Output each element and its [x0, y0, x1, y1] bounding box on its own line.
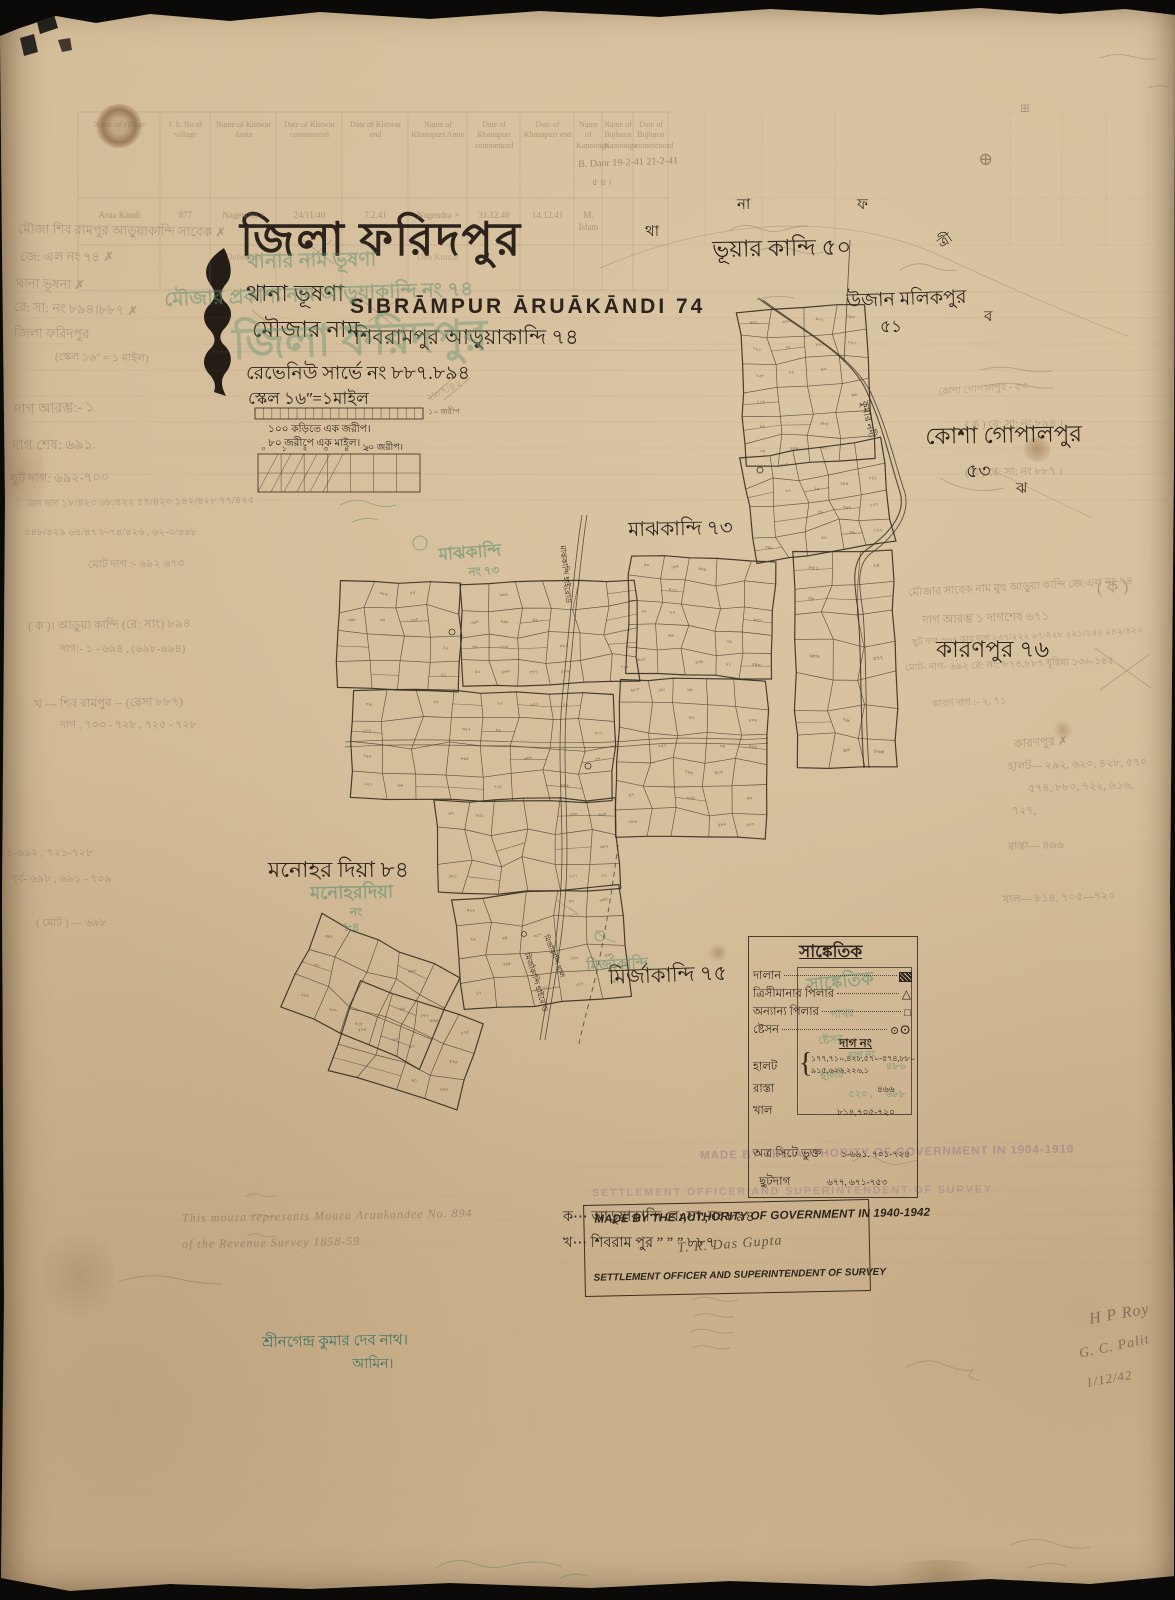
- parcel-number-texture: ৬৫: [400, 1006, 406, 1011]
- parcel-number-texture: ৩৫৮: [764, 544, 773, 551]
- legend-halot-label: হালট: [753, 1061, 777, 1073]
- parcel-number-texture: ৩২৭: [462, 726, 471, 732]
- parcel-number-texture: ৬১৫: [638, 657, 647, 662]
- parcel-grid-lines: [736, 305, 875, 467]
- parcel-number-texture: ৬৬: [668, 632, 674, 638]
- parcel-number-texture: ৪১: [441, 672, 447, 677]
- parcel-subdivision-lines: [794, 569, 893, 723]
- handwritten-scribble: [760, 247, 824, 254]
- parcel-number-texture: ১৮৫: [670, 563, 679, 569]
- parcel-number-texture: ৫১: [475, 669, 481, 674]
- paper-sheet: ৬৩১৪২৩৯০১৩৯৩০২১৭৭৮৯১০২০৭২৮০২৯৩১১৫৬৬৯২৪৮৫…: [0, 0, 1175, 1600]
- station-circle: [757, 467, 763, 473]
- parcel-number-texture: ৭২৫: [493, 784, 502, 789]
- boundary-pencil-line: [988, 468, 1092, 518]
- parcel-number-texture: ৩৭৭: [529, 669, 538, 674]
- parcel-number-texture: ৭৭: [497, 701, 503, 706]
- parcel-number-texture: ২৬৭: [604, 952, 613, 958]
- parcel-number-texture: ৬৬: [398, 783, 404, 788]
- parcel-number-texture: ৫৫: [409, 590, 416, 596]
- parcel-number-texture: ৮১: [601, 873, 607, 878]
- green-check-circle: [413, 536, 427, 550]
- parcel-number-texture: ৬৩১: [750, 320, 759, 325]
- legend-row-trijunction-pillar: ত্রিসীমানার পিলার△: [753, 985, 911, 1004]
- legend-box: সাঙ্কেতিক দালান ত্রিসীমানার পিলার△ অন্যা…: [748, 936, 918, 1198]
- parcel-number-texture: ৬৫: [502, 935, 508, 940]
- parcel-subdivision-lines: [337, 621, 459, 677]
- legend-rasta-value: ৪৬৬: [877, 1085, 895, 1094]
- parcel-number-texture: ৩৯৩: [846, 314, 855, 320]
- handwritten-scribble: [980, 367, 1052, 371]
- legend-row-other-pillar: অন্যান্য পিলার□: [753, 1003, 911, 1022]
- boundary-pencil-line: [600, 226, 1128, 336]
- parcel-number-texture: ৬৭: [448, 810, 455, 816]
- parcel-number-texture: ৩২: [380, 617, 386, 622]
- triangle-symbol: △: [902, 987, 911, 1002]
- parcel-number-texture: ৯১৬: [714, 769, 723, 775]
- legend-row-building: দালান: [753, 967, 911, 986]
- legend-dag-heading: দাগ নং: [839, 1037, 872, 1050]
- parcel-number-texture: ০৮৯: [300, 992, 309, 998]
- parcel-number-texture: ৭১০: [620, 664, 629, 669]
- parcel-block-boundary: [736, 305, 875, 467]
- handwritten-scribble: [905, 1361, 979, 1380]
- parcel-block: ৩৩৩৩৬৭৬৯৮৪৬৩২১০৬৫২৩৫১৪৬৩৩৭৭৫০৬৭১০: [460, 580, 640, 686]
- parcel-number-texture: ৮৫১: [476, 813, 485, 818]
- parcel-number-texture: ৩৯: [807, 596, 814, 603]
- parcel-number-texture: ৯৩: [843, 747, 851, 754]
- khal-dashed-line: [578, 845, 618, 1048]
- parcel-number-texture: ৬৭৭: [746, 822, 755, 828]
- parcel-number-texture: ৭৯৭: [363, 753, 372, 760]
- parcel-number-texture: ১২: [442, 645, 449, 651]
- parcel-number-texture: ৮৬৬: [874, 749, 885, 756]
- parcel-block-boundary: [434, 798, 621, 895]
- parcel-number-texture: ১০৬: [499, 644, 508, 649]
- parcel-subdivision-lines: [461, 590, 637, 649]
- parcel-number-texture: ২৭৫: [460, 1029, 469, 1035]
- handwritten-scribble: [436, 1560, 586, 1578]
- parcel-number-texture: ৩৩৩: [499, 592, 508, 598]
- handwritten-scribble: [1010, 1539, 1090, 1568]
- station-circle: [585, 763, 591, 769]
- parcel-number-texture: ১৯: [813, 485, 820, 491]
- parcel-number-texture: ৬৯৮: [500, 618, 509, 625]
- parcel-block-boundary: [281, 913, 460, 1069]
- parcel-number-texture: ৫৩৮: [695, 659, 704, 665]
- parcel-number-texture: ৩৯৯: [840, 481, 849, 486]
- road-line: [345, 738, 768, 743]
- parcel-number-texture: ৪০০: [668, 587, 677, 593]
- handwritten-scribble: [690, 1297, 738, 1349]
- road-line: [345, 743, 768, 748]
- parcel-block: ৪৩১৮৫৩৮৬৪০০২০২৭৯২০৬৬৩৯৬১৫৫৩৮২১৫৪৩: [626, 556, 776, 679]
- parcel-grid-lines: [434, 798, 621, 895]
- parcel-number-texture: ৯২: [759, 423, 766, 429]
- parcel-number-texture: ৬৬: [851, 392, 857, 397]
- parcel-number-texture: ৯২৭: [466, 907, 475, 913]
- legend-label-station: ষ্টেসন: [753, 1021, 779, 1040]
- square-symbol: □: [904, 1007, 911, 1019]
- building-symbol: [900, 973, 911, 981]
- parcel-number-texture: ৭৯: [843, 718, 850, 724]
- parcel-number-texture: ০৮৬: [379, 590, 388, 597]
- boundary-pencil-line: [212, 350, 740, 352]
- parcel-number-texture: ২৪: [873, 563, 880, 569]
- paper-edge-marks: [20, 8, 72, 56]
- parcel-number-texture: ৮৬১: [408, 968, 417, 974]
- parcel-subdivision-lines: [739, 324, 811, 431]
- parcel-subdivision-lines: [467, 815, 615, 880]
- parcel-number-texture: ৫৭৭: [873, 656, 883, 662]
- legend-halot-values-1: ১৭৭,৭১০,৪২৮,৫৭০-৫৭৪,৮৮০: [811, 1055, 915, 1063]
- parcel-number-texture: ৬১: [411, 1077, 417, 1082]
- parcel-number-texture: ৩৩০: [569, 811, 578, 817]
- parcel-number-texture: ২১: [726, 662, 732, 667]
- parcel-number-texture: ৪৬৩: [501, 668, 510, 675]
- parcel-number-texture: ৮১: [785, 488, 792, 494]
- parcel-number-texture: ০২১: [752, 346, 761, 352]
- handwritten-scribble: [362, 300, 394, 324]
- parcel-grid-lines: [615, 678, 768, 839]
- parcel-number-texture: ৩২১: [610, 979, 619, 984]
- handwritten-scribble: [340, 500, 396, 506]
- parcel-number-texture: ৩৭: [595, 756, 601, 761]
- parcel-number-texture: ০২: [788, 369, 794, 375]
- parcel-block: ৯২৭৪৭৬৫৪২৯৬৫৬১৭৩৪৫১৫০২৬৭১৭৩১১৭৭৩২১: [452, 885, 632, 1010]
- legend-chhut-label: ছুটদাগ: [759, 1175, 790, 1188]
- parcel-number-texture: ০৭৭: [420, 1013, 429, 1019]
- station-circle: [449, 629, 455, 635]
- parcel-number-texture: ২৭: [669, 610, 676, 616]
- handwritten-scribble: [900, 264, 956, 271]
- title-brace-mark: [204, 248, 231, 396]
- station-circle: [522, 932, 527, 937]
- handwritten-scribble: [985, 383, 1053, 388]
- parcel-number-texture: ১৯১: [657, 686, 666, 693]
- legend-heading: সাঙ্কেতিক: [799, 943, 862, 961]
- handwritten-scribble: [352, 518, 378, 522]
- parcel-number-texture: ৭২৯: [684, 769, 693, 775]
- parcel-number-texture: ২০১: [530, 701, 539, 708]
- parcel-number-texture: ৭৬৭: [843, 505, 852, 510]
- parcel-subdivision-lines: [662, 591, 772, 667]
- handwritten-scribble: [118, 1276, 222, 1284]
- parcel-block-boundary: [328, 981, 483, 1110]
- parcel-number-texture: ৩৬৭: [470, 619, 479, 626]
- parcel-grid-lines: [460, 580, 640, 686]
- parcel-number-texture: ৪৫৬: [560, 783, 569, 788]
- parcel-number-texture: ৭২৮: [756, 373, 765, 378]
- parcel-number-texture: ৯৯: [687, 687, 693, 693]
- parcel-block: ৬৭৮৫১৩৩০৪৯৪৯৮৭১৮১০৭৭৮১: [434, 798, 621, 895]
- parcel-number-texture: ৬২: [688, 714, 694, 720]
- legend-rasta-label: রাস্তা: [753, 1083, 774, 1095]
- handwritten-scribble: [596, 930, 616, 942]
- parcel-number-texture: ২৯: [470, 936, 476, 941]
- legend-atra-value: ১-৬৯১. ৭০১-৭২৪: [841, 1150, 910, 1159]
- handwritten-scribble: [940, 478, 1004, 490]
- parcel-number-texture: ৭৭: [563, 702, 569, 708]
- parcel-number-texture: ০২০: [847, 339, 856, 346]
- parcel-number-texture: ২৭৩: [362, 728, 371, 733]
- parcel-number-texture: ৩১: [542, 985, 549, 991]
- parcel-number-texture: ২০৭: [594, 730, 603, 735]
- legend-atra-label: অত্র সিটে ভুক্ত: [753, 1147, 822, 1160]
- parcel-number-texture: ৮০৮: [749, 718, 758, 723]
- parcel-number-texture: ৫৪৬: [429, 1018, 438, 1023]
- parcel-number-texture: ৩৪: [760, 449, 766, 454]
- parcel-number-texture: ৩৯: [726, 639, 732, 644]
- parcel-number-texture: ০৭৭: [569, 873, 578, 879]
- legend-row-station: ষ্টেসন⊙⊙: [753, 1021, 911, 1040]
- parcel-number-texture: ১১৫: [757, 399, 766, 404]
- legend-chhut-value: ৬৭৭, ৬৭১-৭৫৩: [827, 1178, 887, 1187]
- parcel-number-texture: ৭৭: [785, 345, 791, 350]
- parcel-number-texture: ৩৬: [849, 529, 855, 535]
- parcel-grid-lines: [328, 981, 483, 1110]
- parcel-number-texture: ৭৬: [366, 702, 372, 707]
- stamp-signature: T. R. Das Gupta: [677, 1234, 783, 1256]
- parcel-number-texture: ১৭: [476, 990, 482, 996]
- parcel-number-texture: ৪৯৪: [598, 811, 607, 817]
- parcel-number-texture: ০৮৫: [409, 617, 418, 624]
- dotted-leader: [837, 992, 899, 994]
- parcel-number-texture: ৪৩: [746, 795, 752, 800]
- parcel-number-texture: ১০৭: [869, 502, 878, 508]
- legend-label-building: দালান: [753, 967, 781, 986]
- stamp-officer-text: SETTLEMENT OFFICER AND SUPERINTENDENT OF…: [594, 1268, 887, 1285]
- dotted-leader: [784, 974, 897, 976]
- parcel-number-texture: ৯৩: [821, 366, 827, 371]
- parcel-number-texture: ১০৫: [686, 795, 695, 800]
- parcel-number-texture: ৪৮৫: [820, 421, 829, 427]
- parcel-number-texture: ১৭৭: [575, 981, 584, 988]
- parcel-number-texture: ৬১৩: [630, 686, 639, 692]
- parcel-block: ৬৯১৮৬১৭২০৭৭০৮৯৭০৮৪১৮৫৩: [281, 913, 460, 1069]
- handwritten-scribble: [300, 238, 334, 264]
- legend-label-other-pillar: অন্যান্য পিলার: [753, 1003, 819, 1022]
- parcel-number-texture: ৫৪৩: [752, 662, 761, 668]
- parcel-number-texture: ৩৪৫: [502, 961, 511, 967]
- parcel-number-texture: ৪৮৯: [717, 821, 726, 828]
- legend-khal-label: খাল: [753, 1105, 772, 1117]
- parcel-number-texture: ৮৬৫: [460, 756, 469, 761]
- dotted-leader: [782, 1028, 887, 1030]
- parcel-number-texture: ২১৩: [873, 527, 882, 533]
- legend-label-trijunction-pillar: ত্রিসীমানার পিলার: [753, 985, 834, 1004]
- parcel-number-texture: ৬৮৬: [809, 653, 820, 660]
- dotted-leader: [822, 1010, 901, 1012]
- station-symbol: ⊙: [890, 1024, 899, 1037]
- legend-khal-value: ৮১৪,৭০৫-৭২০: [837, 1108, 895, 1117]
- handwritten-scribble: [1100, 54, 1168, 88]
- road-line: [545, 515, 587, 1040]
- legend-halot-values-2: ৯১৫,৬২৬,২২৬,১: [811, 1067, 869, 1075]
- scanned-map-sheet: ৬৩১৪২৩৯০১৩৯৩০২১৭৭৮৯১০২০৭২৮০২৯৩১১৫৬৬৯২৪৮৫…: [0, 0, 1175, 1600]
- parcel-number-texture: ৮৫১: [808, 565, 819, 572]
- handwritten-scribble: [246, 1194, 276, 1237]
- parcel-number-texture: ৩২: [472, 644, 478, 649]
- parcel-block: ০৮৬৫৫৩৯৮৩২০৮৫১২৪১: [336, 581, 461, 692]
- parcel-number-texture: ১৮১: [448, 874, 457, 879]
- parcel-number-texture: ৪৬: [532, 617, 538, 622]
- station-symbol-large: ⊙: [899, 1022, 911, 1039]
- parcel-number-texture: ৯০১: [815, 316, 824, 323]
- parcel-block: ৬৫৫৪৬২৭৫৫৭৪৩৩৫৫৬৬১৩০৩: [328, 981, 483, 1110]
- parcel-block: ৮৫১২৪৩৯৬৮৬৫৭৭৭৯৯৩৮৬৬: [793, 550, 898, 768]
- parcel-number-texture: ২০: [641, 609, 647, 614]
- parcel-number-texture: ৫৫৬: [449, 1059, 458, 1065]
- parcel-number-texture: ০০৩: [779, 462, 788, 468]
- parcel-block: ৬৩১৪২৩৯০১৩৯৩০২১৭৭৮৯১০২০৭২৮০২৯৩১১৫৬৬৯২৪৮৫…: [736, 305, 875, 467]
- parcel-number-texture: ৬১৭: [533, 932, 542, 939]
- parcel-number-texture: ৪৩: [643, 562, 649, 567]
- parcel-number-texture: ৪১৮: [355, 1021, 364, 1026]
- parcel-number-texture: ৯৮৭: [600, 844, 609, 850]
- handwritten-scribble: [1095, 648, 1151, 690]
- parcel-number-texture: ২২১: [364, 781, 373, 786]
- authority-stamp-box: MADE BY THE AUTHORITY OF GOVERNMENT IN 1…: [583, 1199, 871, 1297]
- parcel-number-texture: ০১১: [868, 475, 877, 480]
- handwritten-scribble: [756, 296, 794, 300]
- parcel-number-texture: ৭০৮: [329, 1007, 338, 1013]
- parcel-number-texture: ৫৭৪: [358, 1027, 367, 1033]
- parcel-number-texture: ৭২: [314, 963, 320, 968]
- parcel-block: ৬১৩১৯১৯৯৬২৮০৮৭৫৭০৯৪৫৪৭২৯৯১৬৪৭১০৫৪৩০৮৬৪৮৯…: [615, 678, 768, 839]
- parcel-number-texture: ০৮৬: [628, 819, 637, 825]
- parcel-number-texture: ৪৭: [628, 792, 635, 798]
- parcel-number-texture: ৭৮: [433, 699, 440, 705]
- parcel-number-texture: ৪৭: [568, 898, 574, 904]
- map-linework-svg: ৬৩১৪২৩৯০১৩৯৩০২১৭৭৮৯১০২০৭২৮০২৯৩১১৫৬৬৯২৪৮৫…: [0, 0, 1175, 1600]
- parcel-number-texture: ৬৫৪: [599, 896, 608, 903]
- parcel-number-texture: ৬৯১: [325, 933, 334, 938]
- parcel-number-texture: ৬৮৮: [524, 755, 533, 762]
- parcel-number-texture: ৩৯৮: [348, 617, 357, 623]
- handwritten-scribble: [252, 310, 276, 330]
- parcel-number-texture: ৩০৩: [440, 1087, 449, 1092]
- parcel-number-texture: ৩৮৬: [698, 566, 707, 572]
- parcel-number-texture: ১৫০: [570, 955, 579, 960]
- parcel-number-texture: ৪৩: [821, 535, 827, 540]
- parcel-number-texture: ৮২: [495, 727, 501, 733]
- parcel-number-texture: ৯২০: [753, 617, 762, 622]
